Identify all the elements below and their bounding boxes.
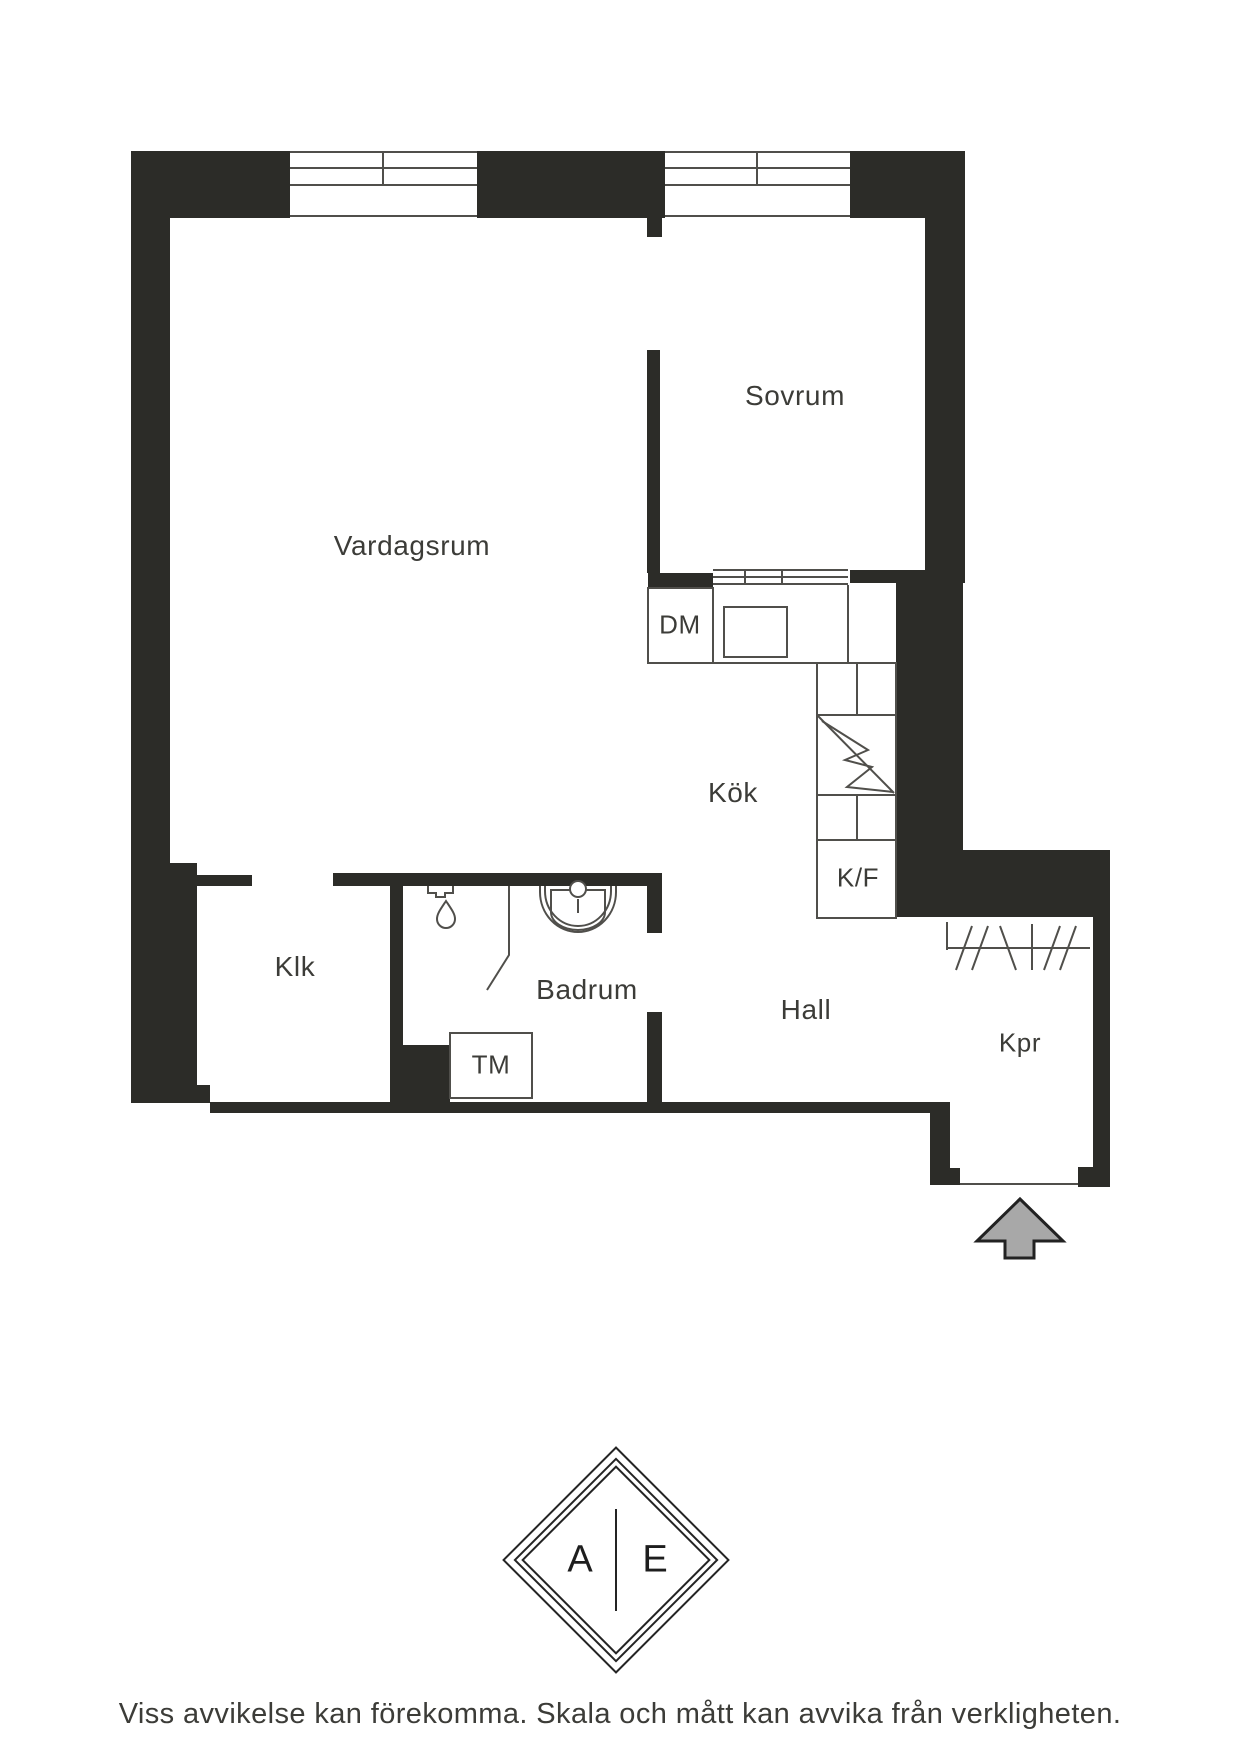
room-label-kok: Kök xyxy=(708,777,758,809)
entrance-arrow xyxy=(977,1199,1063,1258)
appliance-label-dm: DM xyxy=(659,610,701,641)
kitchen-sink-icon xyxy=(724,607,787,657)
lightning-bolt-icon xyxy=(817,715,896,795)
appliance-label-tm: TM xyxy=(472,1050,511,1081)
shower-screen xyxy=(487,886,509,990)
logo-letter-e: E xyxy=(642,1539,667,1582)
room-label-kpr: Kpr xyxy=(999,1028,1041,1059)
bathroom-sink-icon xyxy=(540,881,616,932)
wardrobe-hatching xyxy=(947,922,1090,970)
room-label-hall: Hall xyxy=(781,994,832,1026)
floor-plan-page: Vardagsrum Sovrum Kök Klk Badrum Hall Kp… xyxy=(0,0,1240,1754)
room-label-badrum: Badrum xyxy=(536,974,638,1006)
logo-divider-line xyxy=(615,1509,617,1611)
room-label-sovrum: Sovrum xyxy=(745,380,845,412)
disclaimer-text: Viss avvikelse kan förekomma. Skala och … xyxy=(0,1698,1240,1731)
room-label-klk: Klk xyxy=(275,951,316,983)
window-left-icon xyxy=(290,152,477,216)
room-label-vardagsrum: Vardagsrum xyxy=(334,530,490,562)
window-right-icon xyxy=(665,152,850,216)
kitchen-counter-band xyxy=(713,570,848,584)
appliance-label-kf: K/F xyxy=(837,863,879,894)
shower-fixture-icon xyxy=(428,886,455,928)
logo-letter-a: A xyxy=(567,1539,592,1582)
